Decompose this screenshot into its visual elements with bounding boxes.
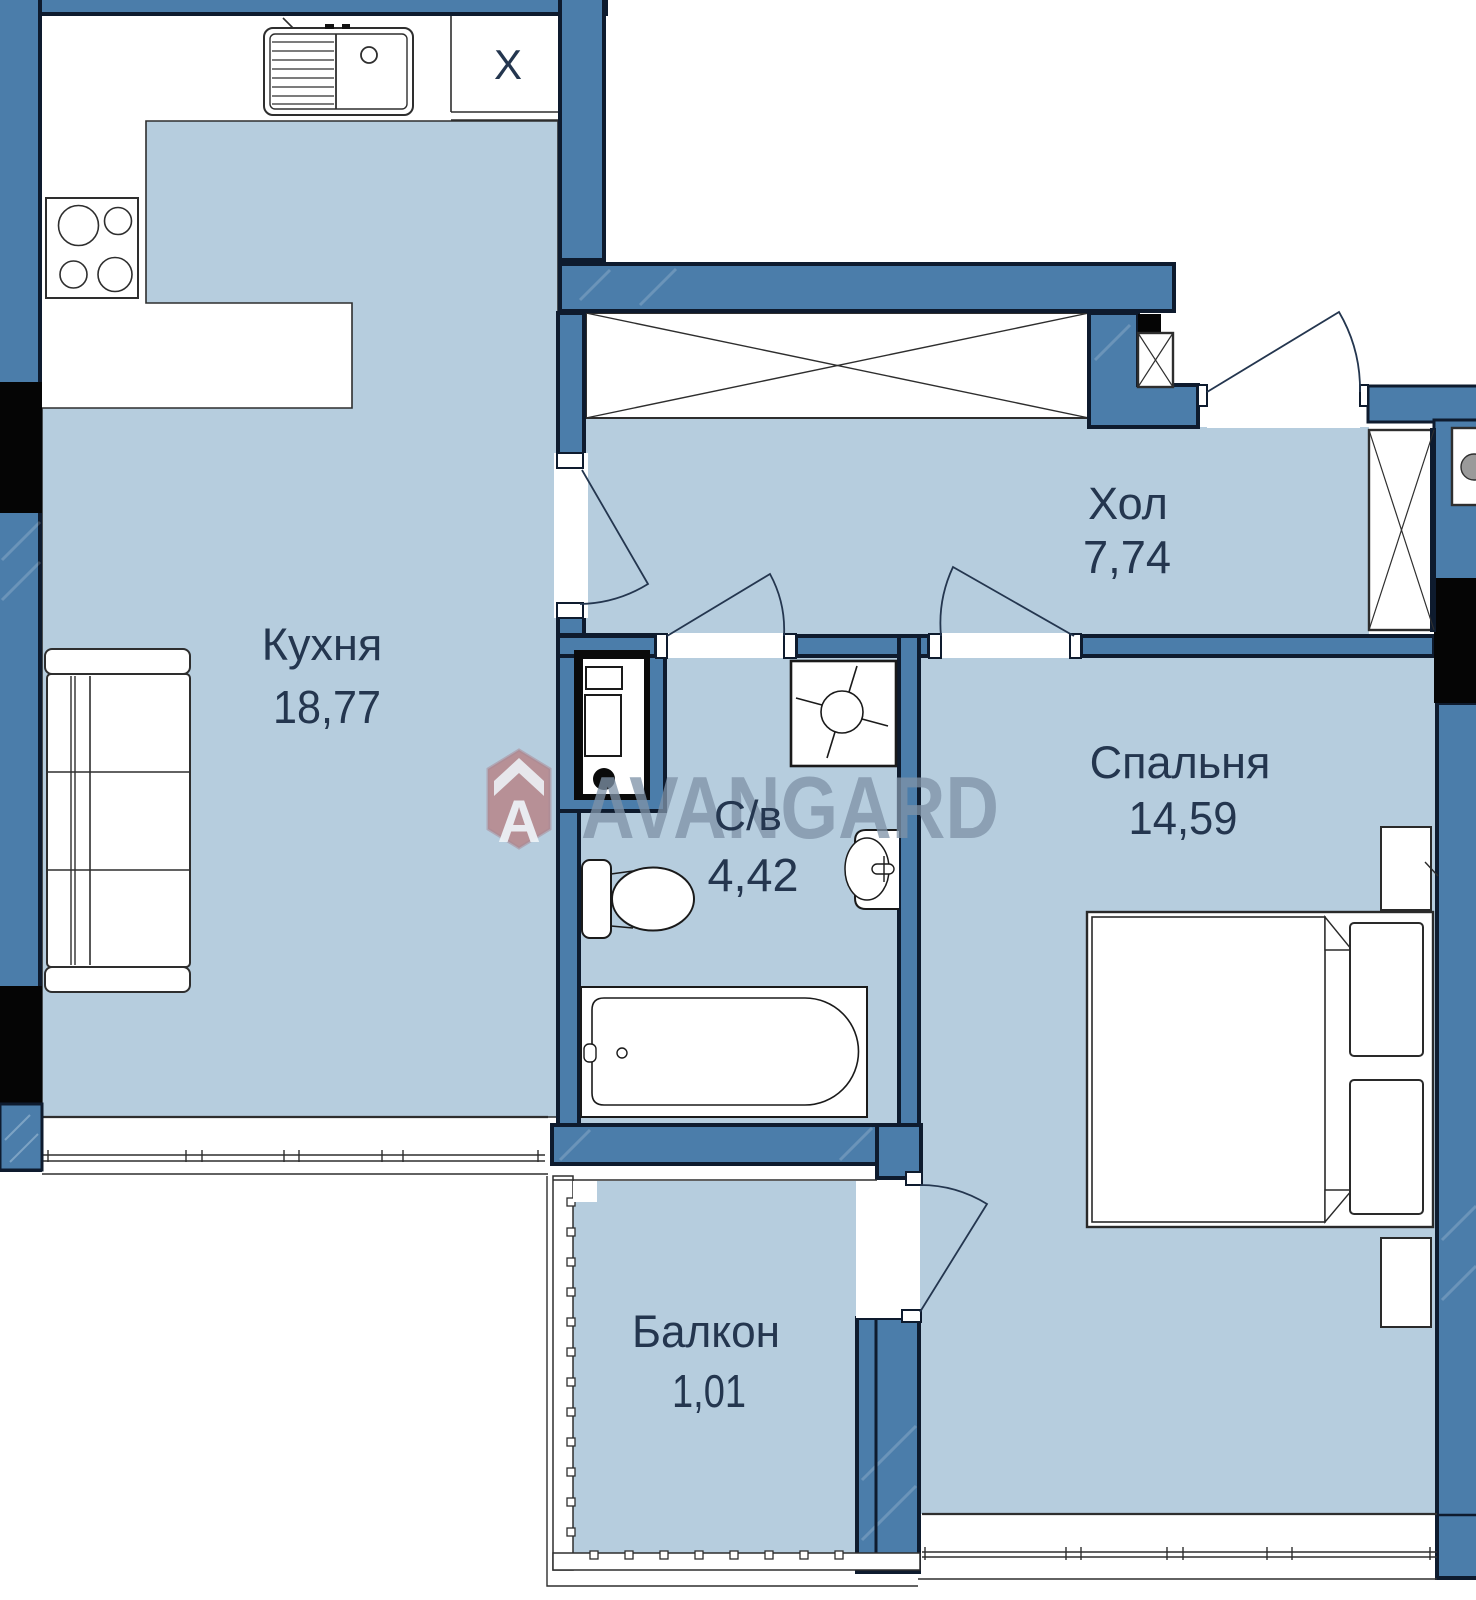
svg-text:Спальня: Спальня [1090, 737, 1271, 788]
svg-text:1,01: 1,01 [672, 1365, 746, 1417]
svg-text:18,77: 18,77 [273, 681, 381, 733]
svg-text:4,42: 4,42 [708, 849, 799, 901]
svg-text:AVANGARD: AVANGARD [581, 758, 999, 857]
svg-text:7,74: 7,74 [1083, 531, 1171, 583]
svg-text:14,59: 14,59 [1129, 792, 1238, 844]
svg-text:A: A [497, 788, 540, 855]
svg-text:Кухня: Кухня [262, 619, 382, 670]
svg-text:Хол: Хол [1088, 478, 1168, 529]
svg-text:С/в: С/в [714, 792, 782, 839]
svg-text:X: X [494, 41, 522, 88]
svg-text:Балкон: Балкон [632, 1306, 780, 1357]
